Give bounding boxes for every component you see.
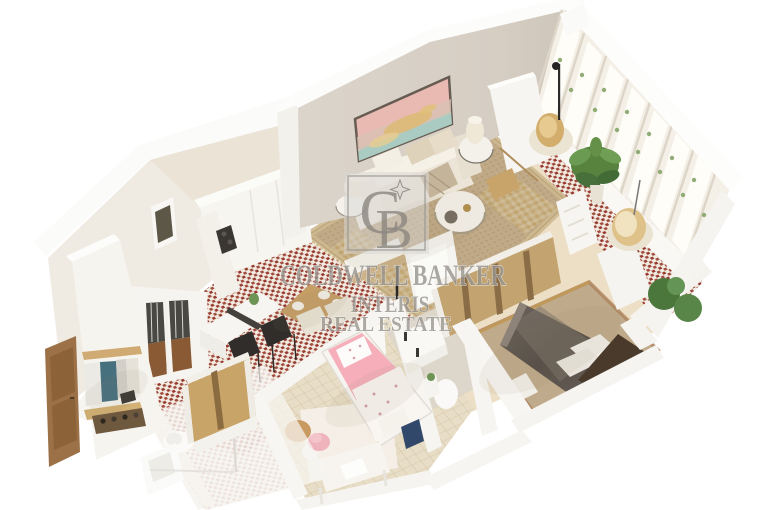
svg-text:COLDWELL BANKER: COLDWELL BANKER xyxy=(280,259,506,292)
svg-text:B: B xyxy=(375,199,412,261)
svg-text:REAL ESTATE: REAL ESTATE xyxy=(320,312,452,336)
